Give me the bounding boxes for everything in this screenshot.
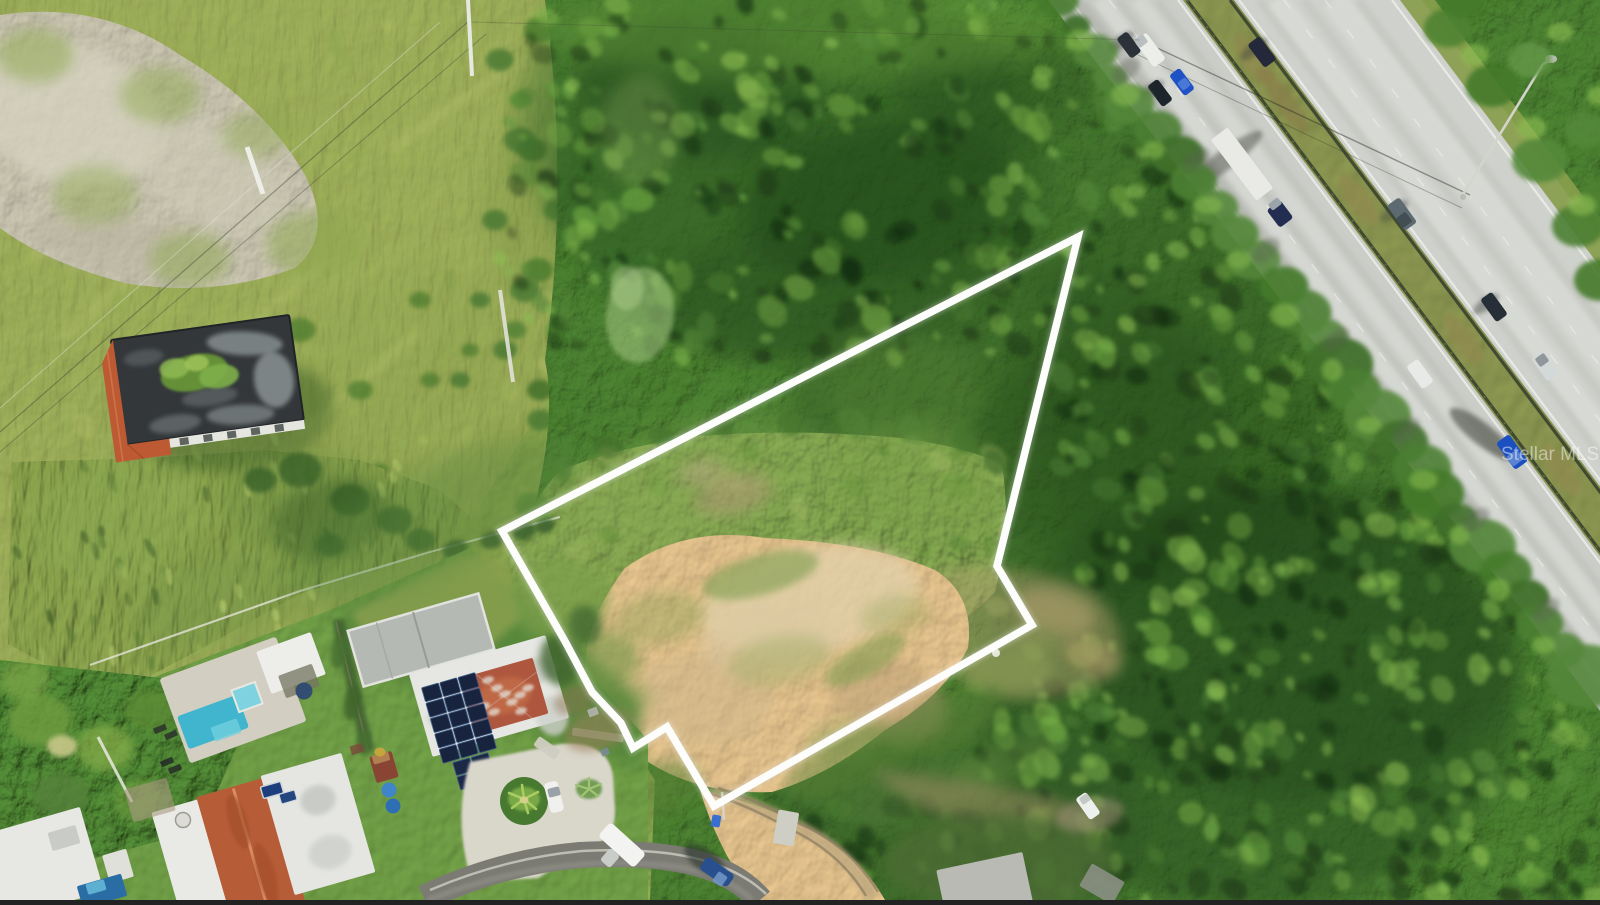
svg-text:Stellar MLS: Stellar MLS (1501, 444, 1599, 465)
